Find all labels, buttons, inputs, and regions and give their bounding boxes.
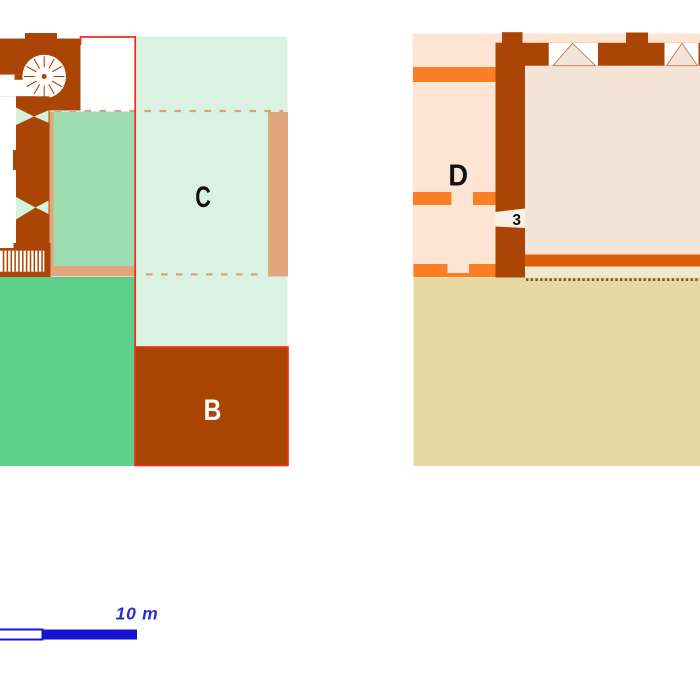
svg-text:B: B (204, 393, 222, 427)
svg-text:3: 3 (512, 212, 521, 229)
svg-text:C: C (195, 179, 211, 213)
svg-text:D: D (448, 159, 468, 193)
svg-text:10 m: 10 m (116, 604, 159, 624)
